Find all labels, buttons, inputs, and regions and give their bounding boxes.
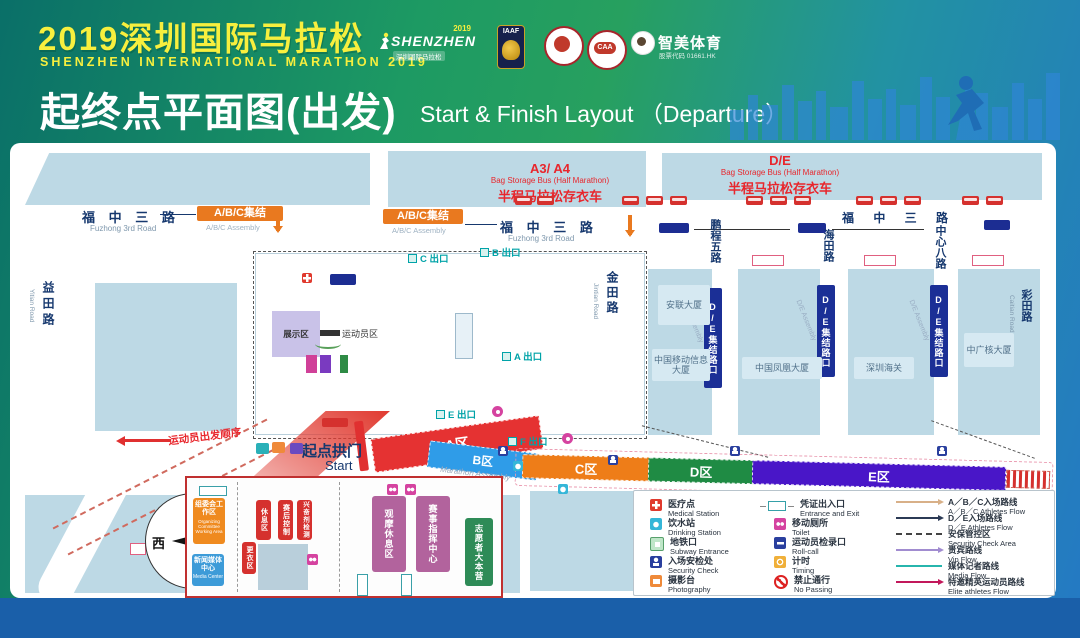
volunteer-camp-label: 志愿者大本营 [473, 524, 485, 581]
marathon-logo: 2019 SHENZHEN 深圳国际马拉松 [377, 24, 473, 64]
media-center-label-en: Media Center [192, 574, 224, 580]
exit-a-label: A 出口 [514, 349, 542, 363]
bag-storage-de-title: D/E [690, 153, 870, 168]
rollcall-icon [774, 537, 786, 549]
road-label-yitian-en: Yitian Road [28, 289, 35, 322]
legend-item-nopassing: 禁止通行No Passing [774, 575, 832, 594]
legend-item-toilet: 移动厕所Toilet [774, 518, 828, 537]
bus-stop-sign [984, 220, 1010, 230]
iaaf-emblem-icon [502, 40, 520, 60]
bag-storage-de-cn: 半程马拉松存衣车 [690, 178, 870, 197]
changing-area: 更衣区 [242, 542, 256, 574]
iaaf-badge: IAAF [497, 25, 525, 69]
zone-e: E区 [752, 460, 1007, 491]
bus-icon [515, 196, 532, 205]
legend-flow-elite: 特邀精英运动员路线Elite athletes Flow [896, 577, 1025, 596]
athletics-association-badge [544, 26, 584, 66]
iaaf-label: IAAF [498, 28, 524, 35]
exit-b: B 出口 [480, 245, 521, 259]
drinking-icon [513, 461, 523, 471]
toilet-icon [307, 554, 318, 565]
exit-f: F 出口 [508, 434, 547, 448]
map-canvas: 展示区 运动员区 福 中 三 路 Fuzhong 3rd Road A/B/C集… [10, 143, 1056, 598]
toilet-icon [774, 518, 786, 530]
inset-divider [237, 482, 238, 592]
arrowhead [938, 579, 947, 585]
metro-exit-icon [436, 410, 445, 419]
start-chip [322, 418, 348, 427]
city-block [95, 283, 237, 431]
post-race-control: 赛后控制 [278, 500, 293, 540]
layout-subtitle-cn: 起终点平面图(出发) [40, 80, 397, 138]
volunteer-camp: 志愿者大本营 [465, 518, 493, 586]
gate [357, 574, 368, 596]
bus-stop-sign [659, 223, 689, 233]
bus-icon [622, 196, 639, 205]
elite-assembly-box [1006, 470, 1050, 489]
exit-e-label: E 出口 [448, 407, 476, 421]
legend-cn: 凭证出入口 [800, 499, 859, 509]
changing-area-label: 更衣区 [244, 546, 254, 570]
connector-line [465, 224, 497, 225]
exit-b-label: B 出口 [492, 245, 521, 259]
rest-area-label: 休息区 [259, 508, 269, 532]
legend-cn: 医疗点 [668, 499, 719, 509]
metro-exit-icon [502, 352, 511, 361]
building-anlian: 安联大厦 [658, 285, 710, 325]
de-assembly-banner-label: D/E集结路口 [820, 295, 833, 368]
building-phoenix: 中国凤凰大厦 [742, 357, 822, 379]
zhimei-emblem [637, 37, 646, 46]
caa-badge: CAA [587, 30, 627, 70]
gate [199, 486, 227, 496]
bag-storage-abc-title: A3/ A4 [450, 161, 650, 176]
city-block [738, 269, 820, 435]
legend-cn: 地铁口 [670, 537, 729, 547]
exit-e: E 出口 [436, 407, 476, 421]
legend-cn: 媒体记者路线 [948, 561, 999, 571]
vip-chip [290, 443, 303, 454]
media-center-label: 新闻媒体中心 [192, 557, 224, 573]
start-arch-label-en: Start [325, 458, 352, 473]
legend-cn: 饮水站 [668, 518, 721, 528]
security-icon [937, 446, 947, 456]
marathon-logo-year: 2019 [453, 24, 471, 33]
legend-cn: 移动厕所 [792, 518, 828, 528]
page-title: 2019深圳国际马拉松 [38, 12, 364, 60]
legend-item-rollcall: 运动员检录口Roll-call [774, 537, 846, 556]
city-block [25, 153, 370, 205]
zone-c-label: C区 [575, 458, 598, 478]
marathon-layout-poster: 2019深圳国际马拉松 SHENZHEN INTERNATIONAL MARAT… [0, 0, 1080, 638]
orange-flow-arrow [276, 209, 280, 231]
metro-exit-icon [480, 248, 489, 257]
inset-block [258, 544, 308, 590]
security-icon [498, 446, 508, 456]
bus-icon [537, 196, 554, 205]
zone-c: C区 [522, 454, 651, 481]
de-flow-line [896, 517, 942, 519]
legend-item-medical: 医疗点Medical Station [650, 499, 719, 518]
legend-cn: A／B／C入场路线 [948, 497, 1025, 507]
road-label-jintian: 金田路 [604, 271, 621, 316]
legend-en: Drinking Station [668, 528, 721, 537]
toilet-circle-icon [562, 433, 573, 444]
gate [401, 574, 412, 596]
toilet-icon [387, 484, 398, 495]
road-label-jintian-en: Jintian Road [592, 283, 599, 319]
zone-d: D区 [648, 457, 755, 484]
medical-icon [650, 499, 662, 511]
exit-c: C 出口 [408, 251, 449, 265]
zhimei-logo-icon [631, 31, 655, 55]
bus-icon [770, 196, 787, 205]
accessible-icon [492, 406, 503, 417]
security-icon [608, 455, 618, 465]
road-label-pengcheng5: 鹏程五路 [707, 219, 723, 263]
legend-cn: 特邀精英运动员路线 [948, 577, 1025, 587]
map-legend: 医疗点Medical Station 饮水站Drinking Station 地… [633, 490, 1055, 596]
committee-label: 组委会工作区 [193, 501, 225, 517]
bus-icon [962, 196, 979, 205]
legend-cn: 安保管控区 [948, 529, 1016, 539]
building-customs: 深圳海关 [854, 357, 914, 379]
connector-line [160, 214, 196, 215]
command-center-label: 赛事指挥中心 [427, 504, 440, 564]
arrowhead [938, 547, 947, 553]
legend-en: Timing [792, 566, 814, 575]
zone-d-label: D区 [690, 461, 713, 481]
road-label-fuzhong-1-en: Fuzhong 3rd Road [90, 224, 156, 233]
legend-cn: 摄影台 [668, 575, 711, 585]
athletics-association-icon [554, 36, 570, 52]
bus-icon [986, 196, 1003, 205]
media-center: 新闻媒体中心 Media Center [192, 554, 224, 586]
committee-area: 组委会工作区 Organizing Committee Working Area [193, 498, 225, 544]
legend-cn: 入场安检处 [668, 556, 718, 566]
bag-storage-de-en: Bag Storage Bus (Half Marathon) [690, 168, 870, 177]
runner-icon [377, 32, 391, 50]
toilet-icon [405, 484, 416, 495]
entrance-rect-icon [768, 501, 786, 511]
legend-item-drinking: 饮水站Drinking Station [650, 518, 721, 537]
security-icon [730, 446, 740, 456]
marathon-logo-sub: 深圳国际马拉松 [393, 51, 445, 61]
abc-assembly-badge-1: A/B/C集结 [197, 206, 283, 221]
legend-cn: D／E入场路线 [948, 513, 1013, 523]
legend-en: No Passing [794, 585, 832, 594]
abc-assembly-badge-2-en: A/B/C Assembly [392, 226, 446, 235]
legend-en: Photography [668, 585, 711, 594]
exit-c-label: C 出口 [420, 251, 449, 265]
bus-icon [904, 196, 921, 205]
legend-item-entrance: 凭证出入口Entrance and Exit [760, 499, 859, 518]
flow-line [832, 229, 924, 230]
inset-divider [339, 482, 340, 592]
building-cgn: 中广核大厦 [964, 333, 1014, 367]
doping-control: 兴奋剂检测 [297, 500, 312, 540]
dash [788, 506, 794, 507]
abc-assembly-badge-1-en: A/B/C Assembly [206, 223, 260, 232]
de-assembly-banner: D/E集结路口 [930, 285, 948, 377]
abc-assembly-badge-2: A/B/C集结 [383, 209, 463, 224]
bus-icon [880, 196, 897, 205]
dash [760, 506, 766, 507]
exit-a: A 出口 [502, 349, 542, 363]
zone-e-label: E区 [868, 466, 890, 486]
timing-icon [774, 556, 786, 568]
abc-flow-line [896, 501, 942, 503]
legend-cn: 计时 [792, 556, 814, 566]
arrowhead [938, 499, 947, 505]
media-flow-line [896, 565, 942, 567]
metro-exit-icon [408, 254, 417, 263]
legend-en: Medical Station [668, 509, 719, 518]
legend-en: Entrance and Exit [800, 509, 859, 518]
road-label-caitian-en: Caitian Road [1008, 295, 1015, 333]
road-label-zhongxin8: 中心八路 [932, 225, 948, 269]
legend-cn: 禁止通行 [794, 575, 832, 585]
page-title-en: SHENZHEN INTERNATIONAL MARATHON 2019 [40, 55, 428, 69]
legend-en: Subway Entrance [670, 547, 729, 556]
committee-label-en: Organizing Committee Working Area [193, 519, 225, 534]
photo-chip [272, 442, 285, 453]
legend-en: Elite athletes Flow [948, 587, 1025, 596]
water-chip [256, 443, 269, 454]
orange-flow-arrow [628, 215, 632, 235]
legend-item-subway: 地铁口Subway Entrance [650, 537, 729, 556]
entrance-gate [752, 255, 784, 266]
exit-f-label: F 出口 [520, 434, 547, 448]
route-marker [130, 543, 146, 555]
viewing-rest-label: 观摩休息区 [383, 509, 396, 559]
legend-cn: 贵宾路线 [948, 545, 982, 555]
rest-area: 休息区 [256, 500, 271, 540]
road-label-yitian: 益田路 [40, 281, 57, 329]
legend-en: Security Check [668, 566, 718, 575]
bus-icon [794, 196, 811, 205]
no-passing-icon [774, 575, 788, 589]
arrowhead [938, 515, 947, 521]
marathon-logo-name: SHENZHEN [391, 33, 476, 49]
photography-icon [650, 575, 662, 587]
bag-storage-abc-en: Bag Storage Bus (Half Marathon) [450, 176, 650, 185]
bus-icon [856, 196, 873, 205]
road-label-fuzhong-2-en: Fuzhong 3rd Road [508, 234, 574, 243]
start-order-arrow [120, 439, 170, 442]
command-center: 赛事指挥中心 [416, 496, 450, 572]
road-label-fuzhong-3: 福 中 三 路 [842, 209, 956, 226]
post-race-control-label: 赛后控制 [281, 504, 291, 536]
bus-icon [670, 196, 687, 205]
bus-icon [746, 196, 763, 205]
entrance-gate [972, 255, 1004, 266]
city-block [848, 269, 934, 435]
vip-flow-line [896, 549, 942, 551]
doping-control-label: 兴奋剂检测 [300, 501, 310, 539]
drinking-icon [650, 518, 662, 530]
legend-item-photography: 摄影台Photography [650, 575, 711, 594]
entrance-gate [864, 255, 896, 266]
road-label-haitian: 海田路 [820, 229, 836, 262]
caa-label: CAA [594, 42, 616, 54]
legend-en: Toilet [792, 528, 828, 537]
bottom-blue-bar [0, 598, 1080, 638]
compass-west: 西 [152, 533, 165, 552]
drinking-icon [558, 484, 568, 494]
zone-b-label: B区 [472, 451, 495, 470]
skyline-decoration [730, 55, 1070, 140]
zhimei-stock-code: 股票代码 01661.HK [659, 50, 716, 60]
road-label-caitian: 彩田路 [1018, 289, 1034, 322]
subway-icon [650, 537, 664, 551]
metro-exit-icon [508, 437, 517, 446]
legend-item-security: 入场安检处Security Check [650, 556, 718, 575]
building-china-mobile: 中国移动信息大厦 [652, 349, 710, 381]
security-area-line [896, 533, 942, 535]
entrance-symbol [760, 501, 794, 511]
security-icon [650, 556, 662, 568]
bus-icon [646, 196, 663, 205]
de-assembly-banner-label: D/E集结路口 [933, 295, 946, 368]
start-area-inset: 组委会工作区 Organizing Committee Working Area… [185, 476, 503, 598]
viewing-rest-area: 观摩休息区 [372, 496, 406, 572]
legend-item-timing: 计时Timing [774, 556, 814, 575]
legend-cn: 运动员检录口 [792, 537, 846, 547]
legend-en: Roll-call [792, 547, 846, 556]
elite-flow-line [896, 581, 942, 583]
